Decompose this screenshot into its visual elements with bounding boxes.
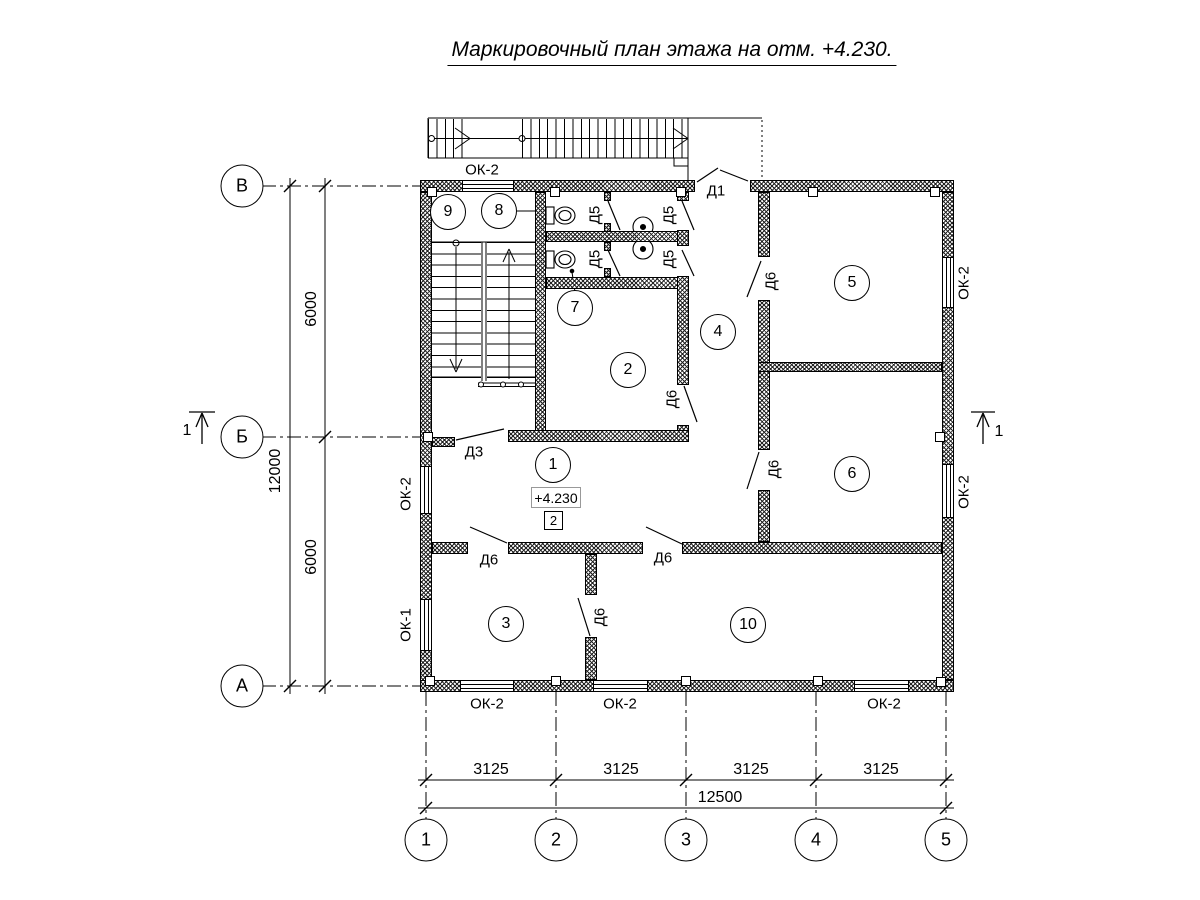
toilet-bowl [555,251,575,268]
sink-drain [641,225,646,230]
door-leaf-d5 [682,201,694,230]
window-ok2-top [463,180,513,192]
wall-corridor-right [758,300,770,450]
window-label-ok1: ОК-1 [398,608,415,642]
room-bubble-2: 2 [610,352,646,388]
toilet-tank [546,207,554,224]
axis-label: В [236,176,248,197]
column-marker [681,676,691,686]
wall-corridor-left [677,276,689,385]
axis-label: 3 [681,830,691,851]
axis-label: 1 [421,830,431,851]
window-label-ok2: ОК-2 [867,696,901,713]
door-leaf-d6 [747,261,761,297]
dim-bottom-segment: 3125 [603,761,639,779]
toilet-bowl-inner [559,211,571,221]
axis-bubble-col-5: 5 [925,819,968,862]
sink-drain [641,247,646,252]
column-marker [936,677,946,687]
drawing-title: Маркировочный план этажа на отм. +4.230. [447,38,896,66]
door-label-d5: Д5 [587,250,604,269]
dim-bottom-segment: 3125 [473,761,509,779]
room-number: 4 [714,323,723,341]
column-marker [423,432,433,442]
column-marker [813,676,823,686]
axis-bubble-row-v: В [221,165,264,208]
wall-corridor-right [758,192,770,257]
wall-d3-stub [432,437,455,447]
door-label-d5: Д5 [661,250,678,269]
column-marker [935,432,945,442]
wall-wc-partition [604,223,611,232]
wall-wc-middle [546,231,689,242]
window-ok1-left [420,600,432,650]
door-label-d6: Д6 [654,550,673,567]
wall-lower-separator [682,542,942,554]
room-bubble-9: 9 [430,194,466,230]
room-bubble-5: 5 [834,265,870,301]
room-number: 10 [739,616,757,634]
zone-mark: 2 [544,511,563,530]
room-bubble-7: 7 [557,290,593,326]
column-marker [676,187,686,197]
axis-bubble-row-a: А [221,665,264,708]
door-leaf-d1 [697,168,718,182]
room-number: 3 [502,615,511,633]
room-bubble-10: 10 [730,607,766,643]
window-label-ok2: ОК-2 [398,477,415,511]
wall-room3-room10 [585,637,597,680]
section-arrow-head [983,413,989,427]
door-leaf-d6 [684,386,697,422]
axis-label: 2 [551,830,561,851]
stair-post [479,382,484,387]
axis-bubble-col-1: 1 [405,819,448,862]
window-ok2-bottom-2 [594,680,647,692]
interior-stair-flight-left [432,242,481,378]
stair-step [674,158,688,166]
door-label-d6: Д6 [664,390,681,409]
elevation-value: +4.230 [534,490,577,506]
door-label-d5: Д5 [587,206,604,225]
window-label-ok2: ОК-2 [603,696,637,713]
wall-wc-partition [604,242,611,251]
door-leaf-d6 [646,527,682,544]
door-leaf-d5 [682,250,694,276]
column-marker [551,676,561,686]
axis-bubble-col-2: 2 [535,819,578,862]
exterior-stair-treads [428,119,468,158]
door-label-d6: Д6 [766,460,783,479]
stair-post [519,382,524,387]
wall-room2-bottom [508,430,689,442]
room-number: 2 [624,361,633,379]
section-label-right: 1 [995,423,1004,441]
dim-left-upper: 6000 [303,291,321,327]
exterior-stair-treads [522,119,686,158]
wall-exterior-left [420,513,432,600]
window-label-ok2: ОК-2 [470,696,504,713]
section-mark-left [189,412,215,444]
door-label-d5: Д5 [661,206,678,225]
wall-room5-room6 [758,362,942,372]
floor-plan-drawing: Маркировочный план этажа на отм. +4.230.… [0,0,1200,900]
section-arrow-head [196,413,202,427]
zone-number: 2 [550,513,557,528]
wall-lower-separator [508,542,643,554]
leader-dot [570,269,574,273]
wall-exterior-bottom [647,680,855,692]
wall-room3-room10 [585,554,597,595]
wall-exterior-left [420,192,432,467]
stair-post [501,382,506,387]
section-arrow-head [202,413,208,427]
door-label-d1: Д1 [707,183,726,200]
room-number: 9 [444,203,453,221]
window-ok2-bottom-3 [855,680,908,692]
wall-corridor-right [758,490,770,542]
room-number: 7 [571,299,580,317]
column-marker [930,187,940,197]
toilet-bowl [555,207,575,224]
axis-label: А [236,676,248,697]
door-label-d6: Д6 [763,272,780,291]
door-leaf-d6 [470,527,507,543]
door-label-d6: Д6 [592,608,609,627]
wall-exterior-top [513,180,695,192]
wall-exterior-right [942,517,954,680]
column-marker [425,676,435,686]
window-label-ok2: ОК-2 [465,162,499,179]
window-ok2-right-2 [942,465,954,517]
room-bubble-3: 3 [488,606,524,642]
window-ok2-left [420,467,432,513]
room-bubble-4: 4 [700,314,736,350]
column-marker [550,187,560,197]
room-number: 8 [495,202,504,220]
room-bubble-6: 6 [834,456,870,492]
dim-left-total: 12000 [267,449,285,494]
room-bubble-8: 8 [481,193,517,229]
wall-exterior-top [750,180,954,192]
axis-label: 5 [941,830,951,851]
column-marker [808,187,818,197]
door-label-d6: Д6 [480,552,499,569]
wall-exterior-right [942,192,954,258]
axis-bubble-row-b: Б [221,416,264,459]
section-label-left: 1 [183,422,192,440]
wall-exterior-bottom [908,680,954,692]
column-marker [427,187,437,197]
room-number: 5 [848,274,857,292]
dim-bottom-total: 12500 [698,789,743,807]
dim-bottom-segment: 3125 [733,761,769,779]
dim-bottom-segment: 3125 [863,761,899,779]
door-leaf-d6 [747,452,759,489]
toilet-tank [546,251,554,268]
section-arrow-head [977,413,983,427]
door-leaf-d3 [456,429,504,440]
door-label-d3: Д3 [465,444,484,461]
wall-wc-bottom [546,277,689,289]
interior-stair-flight-right [487,242,535,378]
wall-wc-partition [604,192,611,201]
wall-corridor-left [677,230,689,246]
room-number: 6 [848,465,857,483]
elevation-mark: +4.230 [531,487,581,508]
window-ok2-right-1 [942,258,954,307]
door-leaf-d1 [720,170,748,181]
wall-stairhall-wc [535,192,546,437]
axis-label: 4 [811,830,821,851]
window-ok2-bottom-1 [461,680,513,692]
axis-bubble-col-3: 3 [665,819,708,862]
dim-left-lower: 6000 [303,539,321,575]
toilet-bowl-inner [559,255,571,265]
wall-lower-separator [432,542,468,554]
wall-wc-partition [604,268,611,277]
axis-bubble-col-4: 4 [795,819,838,862]
room-bubble-1: 1 [535,447,571,483]
door-leaf-d6 [578,598,590,636]
axis-label: Б [236,427,248,448]
section-mark-right [971,412,995,444]
window-label-ok2: ОК-2 [956,475,973,509]
window-label-ok2: ОК-2 [956,266,973,300]
room-number: 1 [549,456,558,474]
